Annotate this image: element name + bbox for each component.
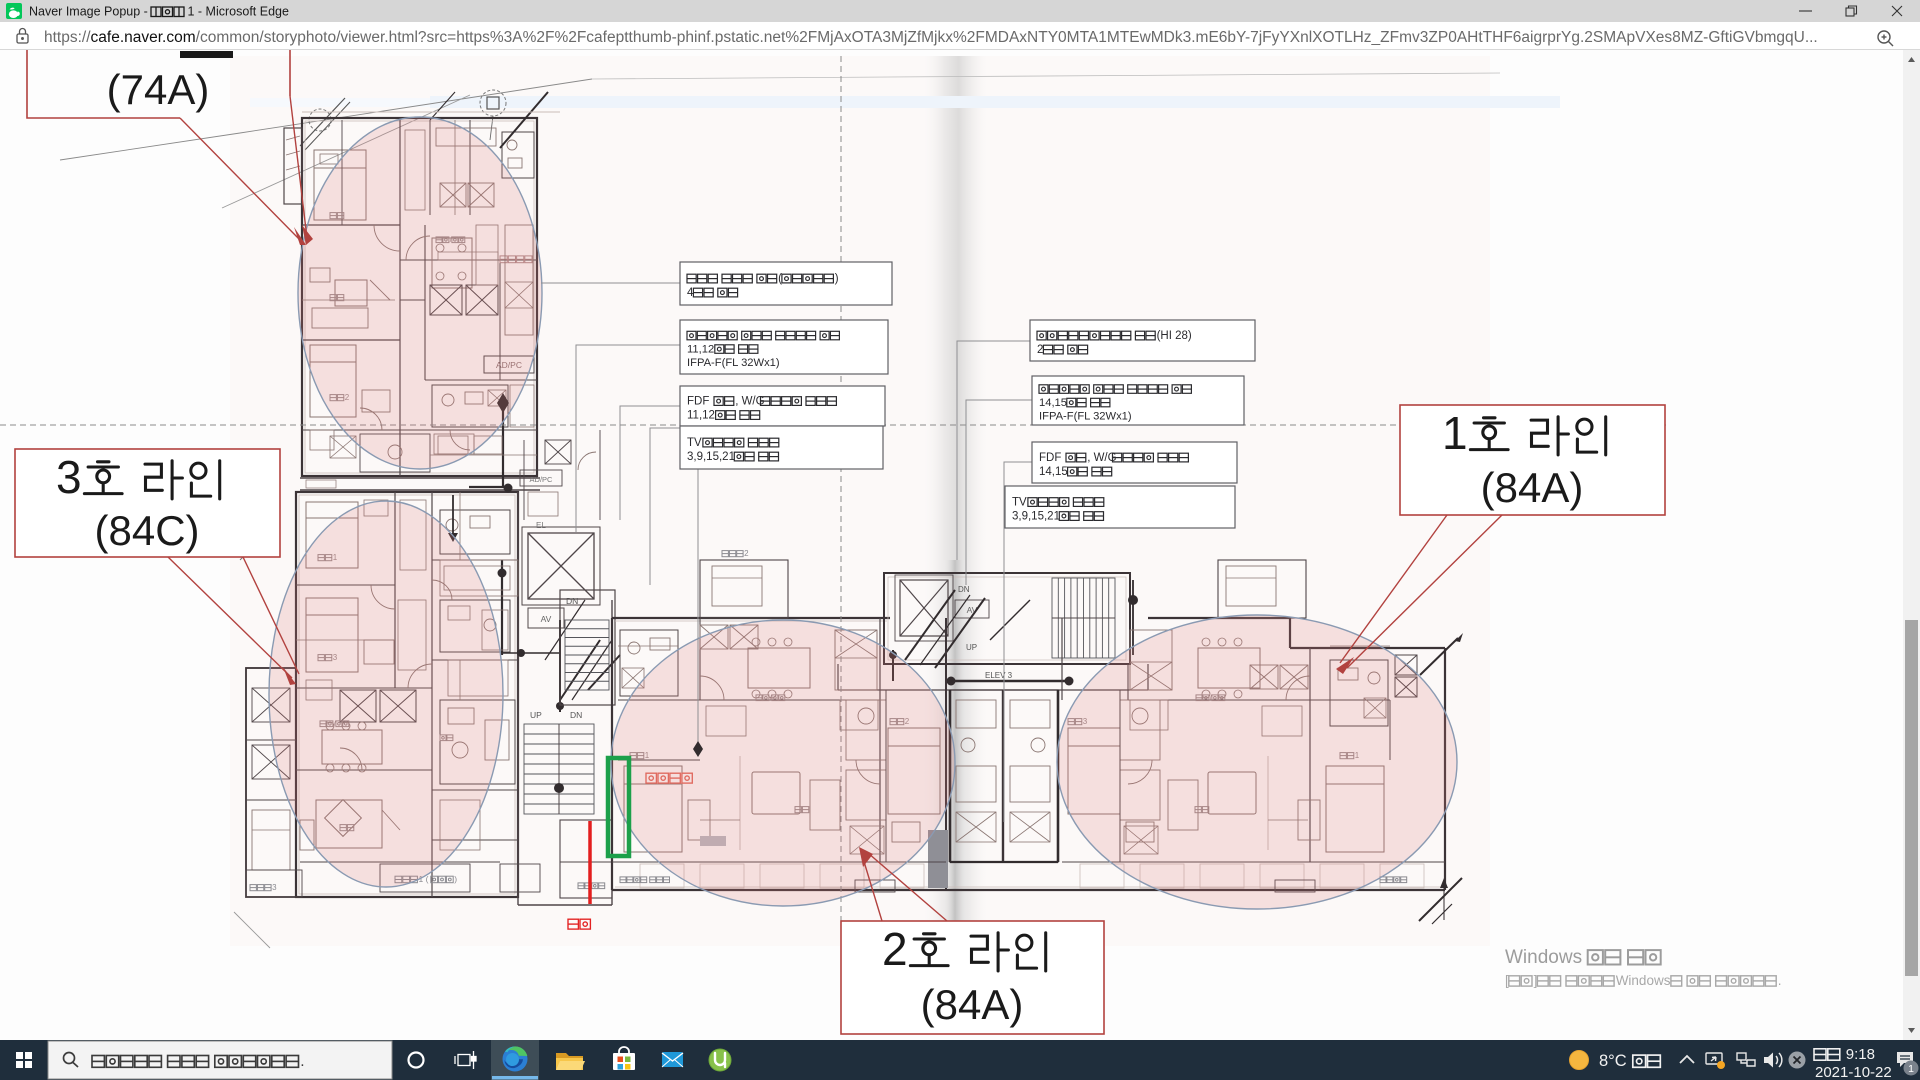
svg-text:1 - Microsoft Edge: 1 - Microsoft Edge <box>188 5 289 19</box>
svg-text:11,12: 11,12 <box>687 410 715 422</box>
svg-text:Windows: Windows <box>1616 973 1671 988</box>
svg-text:1: 1 <box>1442 407 1468 459</box>
svg-text:9:18: 9:18 <box>1846 1046 1875 1063</box>
svg-text:8°C: 8°C <box>1599 1052 1627 1070</box>
svg-text:14,15: 14,15 <box>1039 466 1068 478</box>
svg-text:DN: DN <box>570 710 582 720</box>
svg-text:FDF: FDF <box>1039 452 1061 464</box>
svg-text:(84C): (84C) <box>94 507 199 554</box>
svg-text:.: . <box>300 1053 304 1070</box>
svg-text:3,9,15,21: 3,9,15,21 <box>1012 511 1060 523</box>
svg-text:3: 3 <box>56 451 82 503</box>
svg-text:TV: TV <box>687 437 702 449</box>
svg-text:11,12: 11,12 <box>687 343 714 355</box>
svg-text:(84A): (84A) <box>1481 464 1584 511</box>
svg-text:ELEV 3: ELEV 3 <box>985 671 1013 680</box>
svg-text:https://cafe.naver.com/common/: https://cafe.naver.com/common/storyphoto… <box>44 29 1818 46</box>
svg-text:): ) <box>835 273 839 285</box>
svg-text:2: 2 <box>1037 344 1043 356</box>
svg-text:1: 1 <box>1908 1063 1914 1075</box>
svg-text:(74A): (74A) <box>107 66 210 113</box>
svg-text:IFPA-F(FL 32Wx1): IFPA-F(FL 32Wx1) <box>1039 410 1132 422</box>
svg-text:UP: UP <box>966 643 977 652</box>
svg-text:14,15: 14,15 <box>1039 397 1067 409</box>
svg-text:Windows: Windows <box>1505 947 1582 968</box>
svg-text:UP: UP <box>530 710 542 720</box>
svg-text:): ) <box>454 874 457 884</box>
svg-text:2021-10-22: 2021-10-22 <box>1815 1064 1892 1080</box>
svg-text:FDF: FDF <box>687 396 709 408</box>
svg-text:IFPA-F(FL 32Wx1): IFPA-F(FL 32Wx1) <box>687 357 780 369</box>
svg-text:DN: DN <box>958 585 970 594</box>
svg-text:(84A): (84A) <box>921 981 1024 1028</box>
svg-text:3: 3 <box>272 883 277 892</box>
svg-text:DN: DN <box>566 596 578 606</box>
svg-text:.: . <box>1778 973 1782 988</box>
svg-text:TV: TV <box>1012 497 1027 509</box>
svg-text:3,9,15,21: 3,9,15,21 <box>687 451 735 463</box>
svg-text:Naver Image Popup -: Naver Image Popup - <box>29 5 148 19</box>
svg-text:EL: EL <box>536 521 546 530</box>
svg-text:2: 2 <box>744 549 749 558</box>
svg-text:(HI 28): (HI 28) <box>1157 330 1192 342</box>
svg-text:AD/PC: AD/PC <box>530 475 554 484</box>
svg-text:AV: AV <box>541 614 552 624</box>
svg-text:2: 2 <box>882 923 908 975</box>
